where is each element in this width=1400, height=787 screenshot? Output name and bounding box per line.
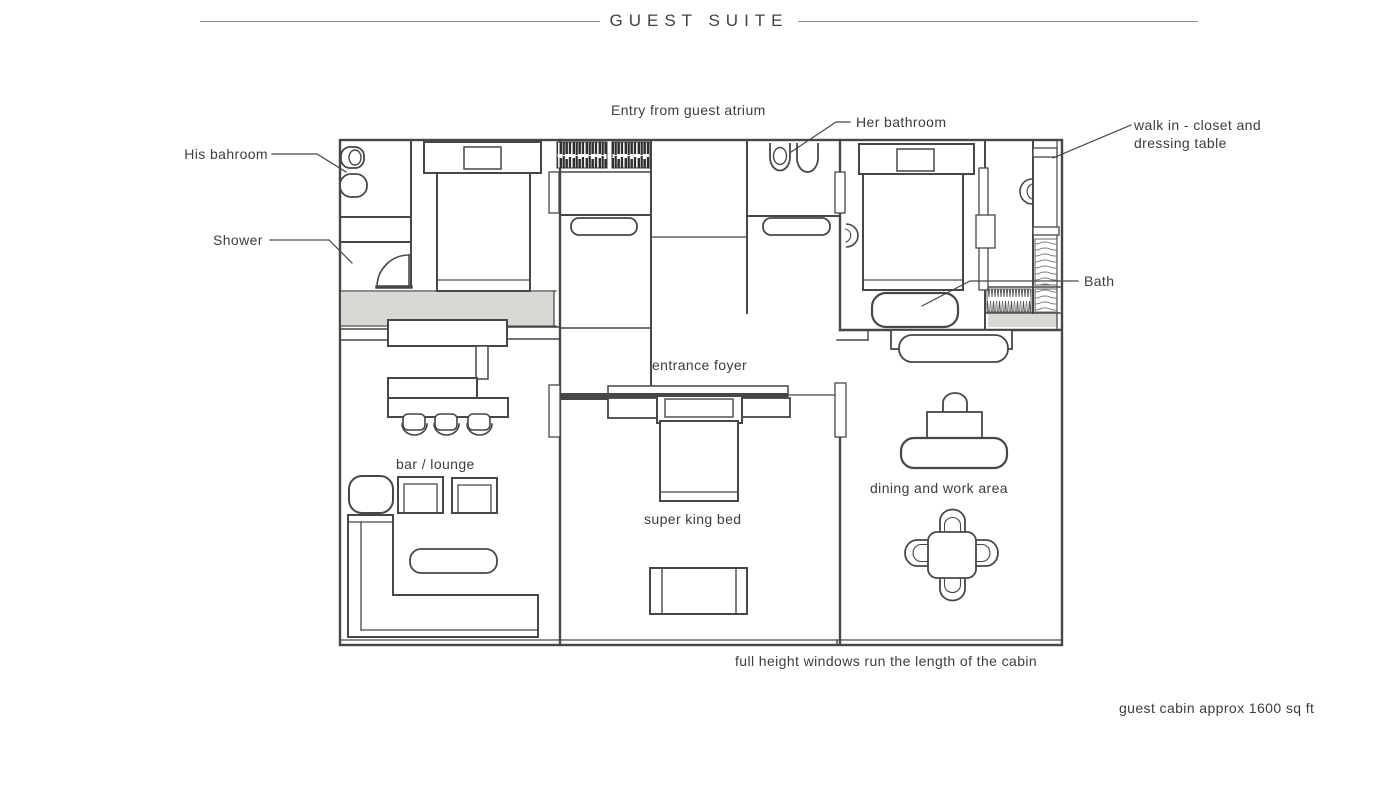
label-entry: Entry from guest atrium — [611, 101, 766, 119]
leader-lines — [270, 122, 1131, 306]
label-super-king-bed: super king bed — [644, 510, 741, 528]
bathtub — [872, 293, 958, 327]
label-bar-lounge: bar / lounge — [396, 455, 475, 473]
floor-plan-page: GUEST SUITE — [0, 0, 1400, 787]
label-entrance-foyer: entrance foyer — [652, 356, 747, 374]
his-bathroom-fixtures — [340, 147, 367, 197]
left-bed — [424, 142, 541, 291]
label-shower: Shower — [213, 231, 263, 249]
dining-table-group — [905, 510, 998, 601]
label-windows-note: full height windows run the length of th… — [735, 652, 1037, 670]
desk-group — [901, 393, 1007, 468]
label-walk-in-closet-line1: walk in - closet and — [1134, 116, 1261, 134]
bed-end-bench-center — [650, 568, 747, 614]
label-walk-in-closet: walk in - closet and dressing table — [1134, 116, 1261, 152]
bar-stools — [402, 414, 492, 435]
label-dining-work-area: dining and work area — [870, 479, 1008, 497]
label-walk-in-closet-line2: dressing table — [1134, 134, 1261, 152]
super-king-bed-group — [608, 396, 790, 614]
bed-end-bench-right — [891, 330, 1012, 362]
label-bath: Bath — [1084, 272, 1114, 290]
label-her-bathroom: Her bathroom — [856, 113, 946, 131]
bar-counter — [388, 320, 508, 435]
her-bathroom-fixtures — [763, 143, 830, 235]
walk-in-closet-details — [987, 179, 1057, 312]
label-cabin-area: guest cabin approx 1600 sq ft — [1119, 699, 1314, 717]
shower-door — [377, 255, 409, 287]
wardrobe-hatch — [557, 142, 650, 235]
lounge-furniture — [348, 476, 538, 637]
label-his-bathroom: His bahroom — [176, 145, 268, 163]
right-bed — [846, 144, 974, 290]
